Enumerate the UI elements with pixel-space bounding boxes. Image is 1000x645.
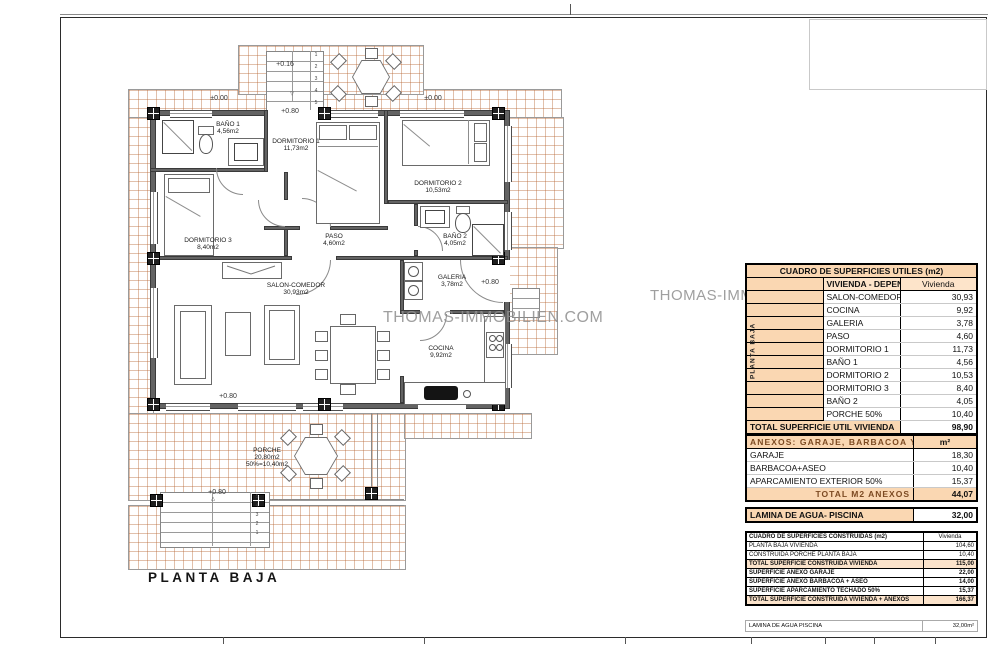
oven-door xyxy=(408,285,419,296)
surface-name-cell: TOTAL SUPERFICIE CONSTRUIDA VIVIENDA + A… xyxy=(746,596,924,606)
room-name-cell: PORCHE 50% xyxy=(823,408,900,421)
table-row: BAÑO 1 4,56 xyxy=(746,356,977,369)
dining-chair xyxy=(315,350,328,361)
plan-label: △ xyxy=(211,497,215,502)
table-title: CUADRO DE SUPERFICIES CONSTRUIDAS (m2) xyxy=(746,532,924,542)
surface-area-cell: 22,00 xyxy=(924,569,978,578)
plan-label: +0.80 xyxy=(281,108,299,115)
plan-label: 2 xyxy=(315,65,318,70)
table-row: TOTAL SUPERFICIE CONSTRUIDA VIVIENDA + A… xyxy=(746,596,977,606)
room-name-cell: BAÑO 2 xyxy=(823,395,900,408)
column xyxy=(318,107,331,120)
anexo-area-cell: 10,40 xyxy=(914,462,978,475)
plan-label: 2 xyxy=(256,522,259,527)
window-salon-porch xyxy=(166,403,210,411)
table-row: DORMITORIO 3 8,40 xyxy=(746,382,977,395)
plan-label: 11,73m2 xyxy=(284,146,309,153)
table-superficies-construidas: CUADRO DE SUPERFICIES CONSTRUIDAS (m2) V… xyxy=(745,531,978,606)
plan-label: 8,40m2 xyxy=(197,245,219,252)
room-name-cell: COCINA xyxy=(823,304,900,317)
frame-bottom-tick xyxy=(825,637,826,644)
sofa-cushions xyxy=(269,310,295,360)
architectural-sheet: BAÑO 14,56m2DORMITORIO 111,73m2DORMITORI… xyxy=(0,0,1000,645)
sink-bano2 xyxy=(425,210,445,224)
terrace-chair xyxy=(365,96,378,107)
window-salon-porch xyxy=(238,403,296,411)
table-lamina-piscina: LAMINA DE AGUA- PISCINA 32,00 xyxy=(745,507,978,523)
surface-area-cell: 104,60 xyxy=(924,542,978,551)
stairs-divider xyxy=(310,51,311,113)
drawing-title: PLANTA BAJA xyxy=(148,570,280,585)
wall-dorm3-right xyxy=(284,228,288,256)
room-area-cell: 4,56 xyxy=(900,356,977,369)
window-bano1 xyxy=(170,110,212,118)
anexo-name-cell: APARCAMIENTO EXTERIOR 50% xyxy=(746,475,914,488)
table-side-label: PLANTA BAJA xyxy=(747,291,759,411)
column-header: VIVIENDA - DEPENDENCIAS xyxy=(823,278,900,291)
dining-chair xyxy=(315,369,328,380)
total-value: 98,90 xyxy=(900,421,977,435)
dining-chair xyxy=(315,331,328,342)
column xyxy=(318,398,331,411)
porch-chair xyxy=(310,478,323,489)
frame-bottom-tick xyxy=(424,637,425,644)
porch-column xyxy=(150,494,163,507)
surface-area-cell: 14,00 xyxy=(924,578,978,587)
table-row: CONSTRUIDA PORCHE PLANTA BAJA 10,40 xyxy=(746,551,977,560)
room-area-cell: 9,92 xyxy=(900,304,977,317)
table-superficies-utiles: CUADRO DE SUPERFICIES UTILES (m2) VIVIEN… xyxy=(745,263,978,435)
plan-label: 4,56m2 xyxy=(217,129,239,136)
window-dorm2-right xyxy=(504,126,512,182)
pillow xyxy=(474,143,487,162)
stove-burner xyxy=(489,335,496,342)
stove-burner xyxy=(496,335,503,342)
frame-bottom-tick xyxy=(625,637,626,644)
title-block-empty-box xyxy=(809,19,987,90)
wall-bano1-bottom xyxy=(150,168,266,172)
table-row: SALON-COMEDOR 30,93 xyxy=(746,291,977,304)
window-dorm2 xyxy=(400,110,464,118)
pillow xyxy=(474,123,487,142)
table-row: BARBACOA+ASEO 10,40 xyxy=(746,462,977,475)
column xyxy=(147,252,160,265)
anexos-unit: m² xyxy=(914,435,978,449)
plan-label: 4,05m2 xyxy=(444,241,466,248)
table-row: TOTAL SUPERFICIE CONSTRUIDA VIVIENDA 115… xyxy=(746,560,977,569)
surface-name-cell: SUPERFICIE ANEXO GARAJE xyxy=(746,569,924,578)
plan-label: 4,60m2 xyxy=(323,241,345,248)
lamina-value: 32,00m² xyxy=(923,621,978,632)
porch-column xyxy=(365,487,378,500)
dining-chair xyxy=(377,331,390,342)
column-header: Vivienda xyxy=(924,532,978,542)
total-label: TOTAL SUPERFICIE UTIL VIVIENDA xyxy=(746,421,900,435)
anexos-header: ANEXOS: GARAJE, BARBACOA Y APARCAMIENTO xyxy=(746,435,914,449)
table-row: GARAJE 18,30 xyxy=(746,449,977,462)
plan-label: 5 xyxy=(315,101,318,106)
room-name-cell: SALON-COMEDOR xyxy=(823,291,900,304)
coffee-table xyxy=(225,312,251,356)
plan-label: 4 xyxy=(315,89,318,94)
faucet xyxy=(463,390,471,398)
wall-dorm3-bottom xyxy=(150,256,292,260)
frame-bottom-tick xyxy=(935,637,936,644)
surface-name-cell: SUPERFICIE ANEXO BARBACOA + ASEO xyxy=(746,578,924,587)
anexo-name-cell: BARBACOA+ASEO xyxy=(746,462,914,475)
pillow xyxy=(349,125,377,140)
column xyxy=(492,107,505,120)
window-salon xyxy=(150,288,158,358)
tv-unit-chevron xyxy=(223,263,279,276)
stairs-divider xyxy=(250,492,251,546)
table-row: SUPERFICIE ANEXO GARAJE 22,00 xyxy=(746,569,977,578)
anexo-name-cell: GARAJE xyxy=(746,449,914,462)
column xyxy=(147,107,160,120)
plan-label: +0.80 xyxy=(481,279,499,286)
room-name-cell: DORMITORIO 1 xyxy=(823,343,900,356)
surface-area-cell: 115,00 xyxy=(924,560,978,569)
plan-label: 3,78m2 xyxy=(441,282,463,289)
plan-label: 4 xyxy=(256,504,259,509)
frame-top-thin-line xyxy=(60,14,988,15)
sofa-cushions xyxy=(180,311,206,379)
washer-drum xyxy=(408,266,419,277)
stove-burner xyxy=(496,344,503,351)
surface-name-cell: TOTAL SUPERFICIE CONSTRUIDA VIVIENDA xyxy=(746,560,924,569)
terrace-chair xyxy=(365,48,378,59)
surface-name-cell: CONSTRUIDA PORCHE PLANTA BAJA xyxy=(746,551,924,560)
window-dorm1 xyxy=(330,110,378,118)
wall-paso-top xyxy=(330,226,388,230)
frame-bottom-tick xyxy=(751,637,752,644)
wall-bano1-right xyxy=(264,110,268,172)
plan-label: 9,92m2 xyxy=(430,353,452,360)
wall-dorm1-dorm2 xyxy=(384,110,388,204)
room-area-cell: 30,93 xyxy=(900,291,977,304)
room-name-cell: GALERIA xyxy=(823,317,900,330)
table-title: CUADRO DE SUPERFICIES UTILES (m2) xyxy=(746,264,977,278)
porch-chair xyxy=(310,424,323,435)
tv-unit xyxy=(222,262,282,279)
surface-area-cell: 166,37 xyxy=(924,596,978,606)
plan-label: 10,53m2 xyxy=(425,188,450,195)
patio-right-strip xyxy=(508,117,564,249)
room-area-cell: 4,05 xyxy=(900,395,977,408)
wall-dorm3-right xyxy=(284,172,288,200)
lamina-value: 32,00 xyxy=(914,508,978,522)
surface-name-cell: SUPERFICIE APARCAMIENTO TECHADO 50% xyxy=(746,587,924,596)
table-row: DORMITORIO 1 11,73 xyxy=(746,343,977,356)
anexo-area-cell: 18,30 xyxy=(914,449,978,462)
bed-line xyxy=(468,120,469,164)
dining-chair xyxy=(377,369,390,380)
wall-bano2-left xyxy=(414,204,418,226)
dining-chair xyxy=(340,314,356,325)
plan-label: 3 xyxy=(256,513,259,518)
table-row: PLANTA BAJA VIVIENDA 104,60 xyxy=(746,542,977,551)
stove-burner xyxy=(489,344,496,351)
pillow xyxy=(319,125,347,140)
room-name-cell: DORMITORIO 3 xyxy=(823,382,900,395)
table-row: SUPERFICIE APARCAMIENTO TECHADO 50% 15,3… xyxy=(746,587,977,596)
pillow xyxy=(168,178,210,193)
room-area-cell: 11,73 xyxy=(900,343,977,356)
table-lamina-bottom: LAMINA DE AGUA PISCINA 32,00m² xyxy=(745,620,978,632)
plan-label: 50%=10,40m2 xyxy=(246,462,288,469)
lamina-label: LAMINA DE AGUA PISCINA xyxy=(746,621,923,632)
door-opening-entrance xyxy=(504,260,510,302)
table-row: SUPERFICIE ANEXO BARBACOA + ASEO 14,00 xyxy=(746,578,977,587)
window-bano2 xyxy=(504,212,512,250)
table-row: PORCHE 50% 10,40 xyxy=(746,408,977,421)
room-name-cell: PASO xyxy=(823,330,900,343)
wall-dorm2-bottom xyxy=(388,200,508,204)
plan-label: 1 xyxy=(315,53,318,58)
plan-label: ▽ xyxy=(290,92,294,97)
patio-bottom-band xyxy=(404,413,532,439)
room-name-cell: DORMITORIO 2 xyxy=(823,369,900,382)
room-area-cell: 10,40 xyxy=(900,408,977,421)
plan-label: ±0.00 xyxy=(424,95,441,102)
room-area-cell: 4,60 xyxy=(900,330,977,343)
anexos-total-label: TOTAL M2 ANEXOS xyxy=(746,488,914,502)
room-name-cell: BAÑO 1 xyxy=(823,356,900,369)
dining-chair xyxy=(340,384,356,395)
room-area-cell: 10,53 xyxy=(900,369,977,382)
surface-area-cell: 10,40 xyxy=(924,551,978,560)
table-row: APARCAMIENTO EXTERIOR 50% 15,37 xyxy=(746,475,977,488)
toilet-bano1 xyxy=(199,134,213,154)
anexos-total-value: 44,07 xyxy=(914,488,978,502)
plan-label: 30,93m2 xyxy=(283,290,308,297)
plan-label: 5 xyxy=(256,495,259,500)
frame-bottom-tick xyxy=(223,637,224,644)
anexo-area-cell: 15,37 xyxy=(914,475,978,488)
column-header: Vivienda xyxy=(900,278,977,291)
dining-table xyxy=(330,326,376,384)
frame-bottom-tick xyxy=(874,637,875,644)
toilet-bano2 xyxy=(455,213,471,233)
column xyxy=(147,398,160,411)
plan-label: ±0.00 xyxy=(210,95,227,102)
watermark: THOMAS-IMMOBILIEN.COM xyxy=(383,309,603,327)
lamina-label: LAMINA DE AGUA- PISCINA xyxy=(746,508,914,522)
window-dorm3 xyxy=(150,192,158,244)
kitchen-sink xyxy=(424,386,458,400)
plan-label: 1 xyxy=(256,531,259,536)
plan-label: +0.16 xyxy=(276,61,294,68)
frame-top-tick xyxy=(570,4,571,15)
table-row: DORMITORIO 2 10,53 xyxy=(746,369,977,382)
table-anexos: ANEXOS: GARAJE, BARBACOA Y APARCAMIENTO … xyxy=(745,434,978,502)
table-row: PASO 4,60 xyxy=(746,330,977,343)
table-row: GALERIA 3,78 xyxy=(746,317,977,330)
plan-label: +0.80 xyxy=(219,393,237,400)
plan-label: 3 xyxy=(315,77,318,82)
surface-name-cell: PLANTA BAJA VIVIENDA xyxy=(746,542,924,551)
surface-area-cell: 15,37 xyxy=(924,587,978,596)
sink-bano1 xyxy=(234,143,258,161)
table-row: COCINA 9,92 xyxy=(746,304,977,317)
room-area-cell: 3,78 xyxy=(900,317,977,330)
dining-chair xyxy=(377,350,390,361)
room-area-cell: 8,40 xyxy=(900,382,977,395)
bed-line xyxy=(318,146,378,147)
table-row: BAÑO 2 4,05 xyxy=(746,395,977,408)
porch-railing xyxy=(371,413,378,489)
